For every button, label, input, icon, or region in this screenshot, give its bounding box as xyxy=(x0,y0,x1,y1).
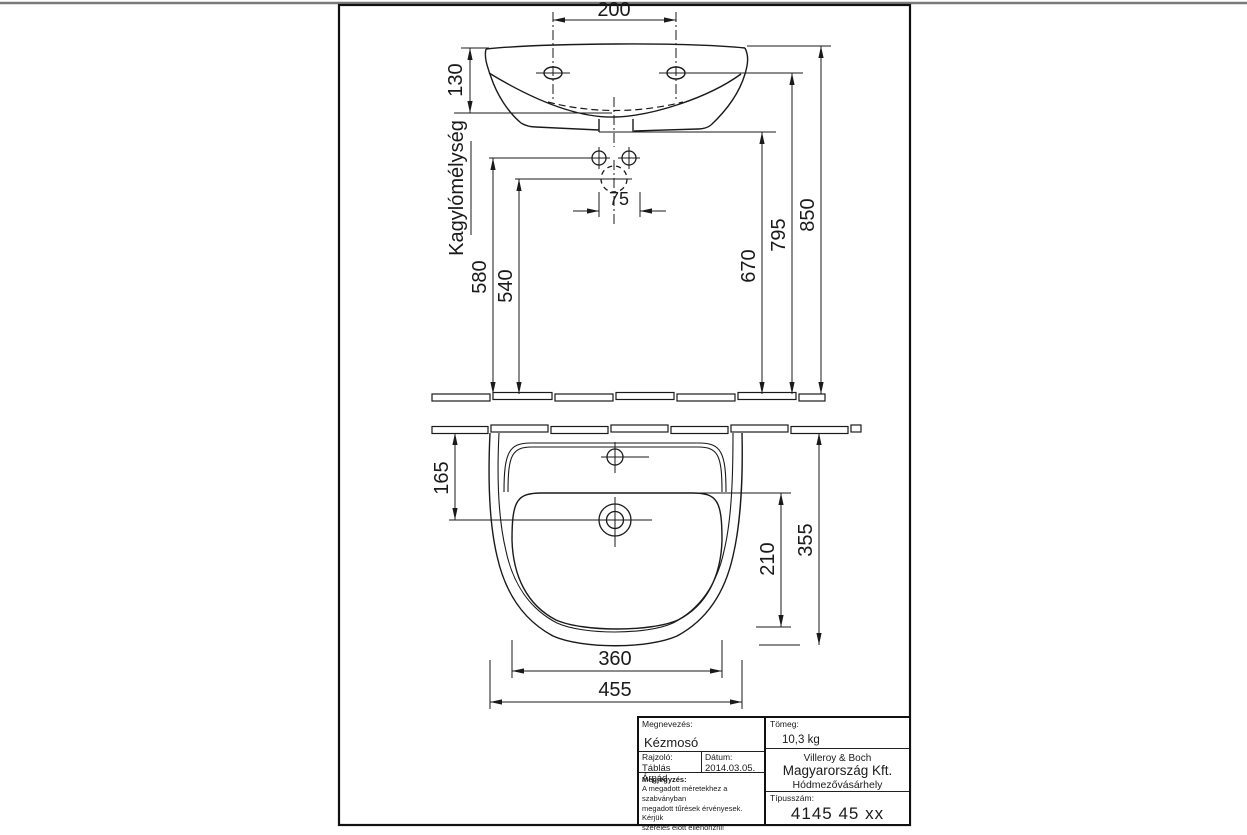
company-entity: Magyarország Kft. xyxy=(768,764,907,779)
company-city: Hódmezővásárhely xyxy=(768,779,907,791)
notes-line-2: megadott tűrések érvényesek. Kérjük xyxy=(642,804,761,824)
front-view-mounting-holes xyxy=(536,12,803,101)
type-number-label: Típusszám: xyxy=(770,794,905,804)
designation-value: Kézmosó xyxy=(642,735,761,750)
designation-cell: Megnevezés: Kézmosó xyxy=(639,718,764,752)
notes-label: Megjegyzés: xyxy=(642,775,761,784)
top-view-dimension-labels: 165 210 355 360 455 xyxy=(431,461,817,701)
dim-540: 540 xyxy=(495,269,517,302)
company-cell: Villeroy & Boch Magyarország Kft. Hódmez… xyxy=(766,749,909,792)
dim-bowl-depth: 210 xyxy=(757,542,779,575)
type-number-value: 4145 45 xx xyxy=(770,804,905,824)
designation-label: Megnevezés: xyxy=(642,720,761,730)
drafter-label: Rajzoló: xyxy=(642,753,698,763)
drafter-cell: Rajzoló: Táblás Árpád xyxy=(639,752,702,772)
date-label: Dátum: xyxy=(705,753,761,763)
title-block-left-column: Megnevezés: Kézmosó Rajzoló: Táblás Árpá… xyxy=(639,718,766,824)
dim-hole-spacing: 200 xyxy=(597,0,630,21)
dim-tap-holes: 75 xyxy=(609,189,629,209)
dim-drain-from-wall: 165 xyxy=(431,461,453,494)
dim-580: 580 xyxy=(469,260,491,293)
drafter-date-row: Rajzoló: Táblás Árpád Dátum: 2014.03.05. xyxy=(639,752,764,773)
technical-drawing-canvas: 200 130 Kagylómélység 75 580 540 670 795… xyxy=(0,0,1247,831)
bowl-depth-label: Kagylómélység xyxy=(446,120,468,256)
dim-rim-height: 130 xyxy=(445,63,467,96)
mass-cell: Tömeg: 10,3 kg xyxy=(766,718,909,749)
date-cell: Dátum: 2014.03.05. xyxy=(702,752,764,772)
dim-795: 795 xyxy=(768,218,790,251)
title-block: Megnevezés: Kézmosó Rajzoló: Táblás Árpá… xyxy=(637,716,911,826)
front-view-basin-outline xyxy=(485,44,747,132)
top-view-fittings xyxy=(599,442,649,547)
notes-line-3: szerelés előtt ellenőrizni! xyxy=(642,823,761,833)
dim-total-width: 455 xyxy=(598,679,631,701)
dim-850: 850 xyxy=(797,198,819,231)
type-number-cell: Típusszám: 4145 45 xx xyxy=(766,792,909,826)
dim-670: 670 xyxy=(738,249,760,282)
dim-bowl-width: 360 xyxy=(598,648,631,670)
mass-value: 10,3 kg xyxy=(770,734,905,746)
wall-line xyxy=(432,425,861,434)
dim-total-depth: 355 xyxy=(795,523,817,556)
notes-cell: Megjegyzés: A megadott méretekhez a szab… xyxy=(639,773,764,835)
front-view-dimensions xyxy=(454,20,831,394)
title-block-right-column: Tömeg: 10,3 kg Villeroy & Boch Magyarors… xyxy=(766,718,909,824)
notes-line-1: A megadott méretekhez a szabványban xyxy=(642,784,761,804)
floor-line xyxy=(432,393,825,402)
mass-label: Tömeg: xyxy=(770,720,905,730)
